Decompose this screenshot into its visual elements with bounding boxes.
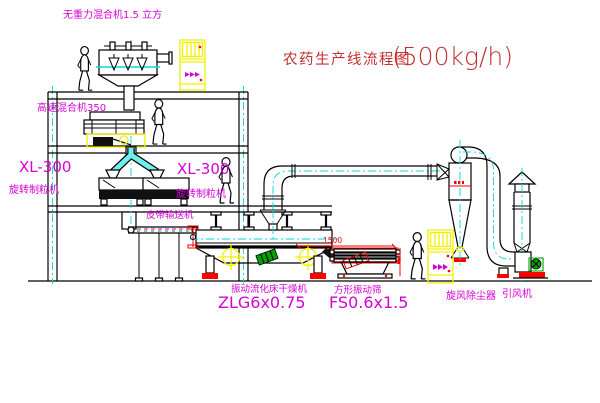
cad-flow-diagram: 无重力混合机1.5 立方 农药生产线流程图 (500kg/h) 高速混合机350… xyxy=(0,0,600,403)
cyclone-separator xyxy=(449,140,471,266)
label-granulator-center-model: XL-300 xyxy=(177,162,229,177)
belt-conveyor-machine xyxy=(128,227,198,281)
control-cabinet-top xyxy=(180,40,205,90)
high-speed-mixer-machine xyxy=(84,112,145,154)
label-belt-conveyor: 皮带输送机 xyxy=(146,211,194,221)
label-fan: 引风机 xyxy=(502,290,532,300)
label-gravity-mixer: 无重力混合机1.5 立方 xyxy=(63,11,162,21)
fan-suction-pipe xyxy=(461,147,516,278)
label-screen-model: FS0.6x1.5 xyxy=(329,295,408,311)
dimension-1500: 1500 xyxy=(323,237,342,245)
control-cabinet-right xyxy=(428,230,453,283)
label-high-speed-mixer: 高速混合机350 xyxy=(37,104,106,114)
label-granulator-left-model: XL-300 xyxy=(19,160,71,175)
label-granulator-left-name: 旋转制粒机 xyxy=(9,186,59,196)
diagram-title-capacity: (500kg/h) xyxy=(392,44,513,69)
induced-draft-fan xyxy=(513,252,548,278)
label-cyclone: 旋风除尘器 xyxy=(446,292,496,302)
label-dryer-model: ZLG6x0.75 xyxy=(218,295,306,311)
cyclone-inlet-transition xyxy=(437,164,449,180)
label-granulator-center-name: 旋转制粒机 xyxy=(176,190,226,200)
